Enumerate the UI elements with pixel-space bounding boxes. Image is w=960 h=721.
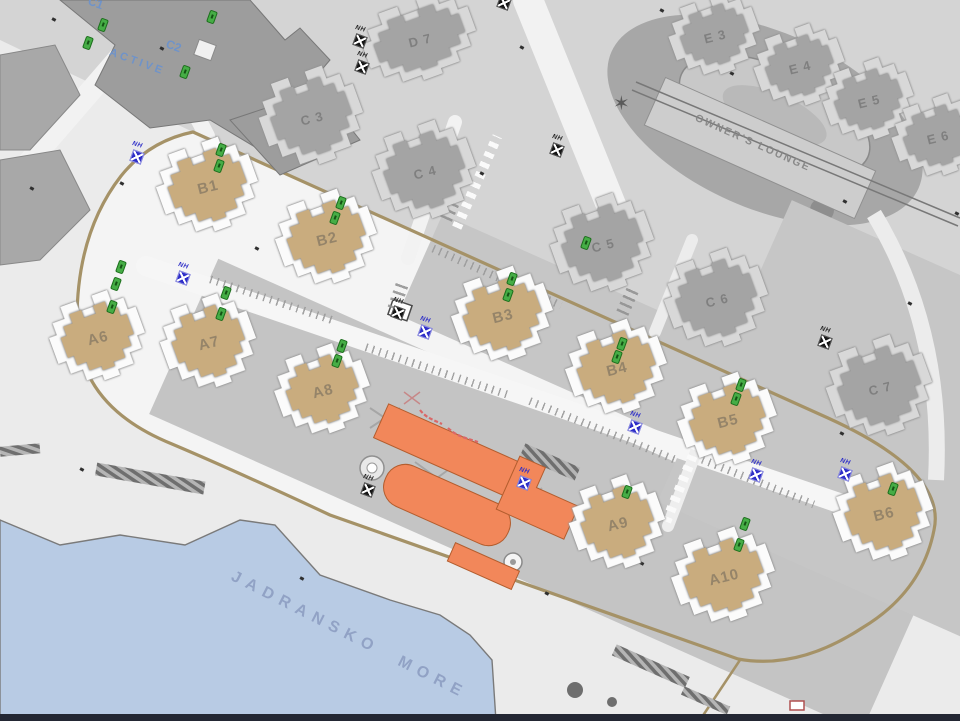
hydrant-label: NH: [551, 133, 563, 143]
hydrant-label: NH: [177, 261, 189, 271]
hydrant-label: NH: [356, 50, 368, 60]
hydrant-label: NH: [629, 410, 641, 420]
hydrant-label: NH: [392, 296, 404, 306]
hydrant-label: NH: [354, 24, 366, 34]
hydrant-label: NH: [750, 458, 762, 468]
bottom-border-bar: [0, 714, 960, 721]
site-plan-map: ✶: [0, 0, 960, 721]
hydrant-label: NH: [839, 457, 851, 467]
hydrant-label: NH: [362, 473, 374, 483]
fountain-star-icon: ✶: [613, 93, 630, 115]
hydrant-label: NH: [419, 315, 431, 325]
hydrant-label: NH: [819, 325, 831, 335]
hydrant-label: NH: [131, 140, 143, 150]
hydrant-label: NH: [518, 466, 530, 476]
